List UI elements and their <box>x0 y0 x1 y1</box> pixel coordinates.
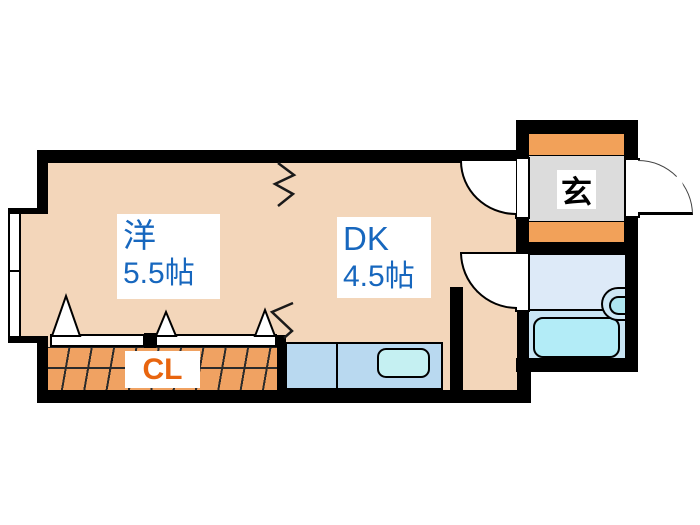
room-western-name: 洋 <box>123 217 214 256</box>
entrance-label: 玄 <box>557 170 596 209</box>
closet-door-panel-right <box>155 334 277 347</box>
room-western-size: 5.5帖 <box>123 256 214 291</box>
room-dk-size: 4.5帖 <box>343 259 425 294</box>
shoe-cabinet-bottom <box>528 221 625 243</box>
closet-door-panel-left <box>50 334 145 347</box>
wall-step-lower <box>8 336 48 343</box>
room-dk-name: DK <box>343 220 425 259</box>
room-label-dk: DK 4.5帖 <box>337 217 431 298</box>
kitchen-sink <box>377 348 430 378</box>
partition-kitchen <box>450 287 463 390</box>
bathroom-sink-bowl <box>609 296 625 315</box>
wall-left-upper <box>37 150 48 208</box>
balcony-window <box>8 214 21 336</box>
wall-top <box>37 150 517 163</box>
door-arc-entrance <box>638 160 693 215</box>
door-opening-dk-genkan <box>515 157 530 219</box>
door-opening-bathroom <box>515 252 530 312</box>
room-label-western: 洋 5.5帖 <box>117 214 220 299</box>
shoe-cabinet-top <box>528 133 625 156</box>
floor-plan: CL 玄 洋 5.5帖 DK 4.5帖 <box>0 0 700 525</box>
window-sash-tick <box>8 270 21 272</box>
wall-bottom <box>37 390 530 403</box>
closet-label-text: CL <box>143 353 183 387</box>
window-alcove-floor <box>20 214 48 336</box>
bathtub <box>533 317 620 358</box>
closet-label: CL <box>125 351 200 388</box>
kitchen-counter-divider <box>336 342 338 390</box>
bathroom-wall-bottom <box>516 358 638 372</box>
entrance-label-text: 玄 <box>561 167 592 212</box>
bathroom-wall-right <box>625 240 638 372</box>
